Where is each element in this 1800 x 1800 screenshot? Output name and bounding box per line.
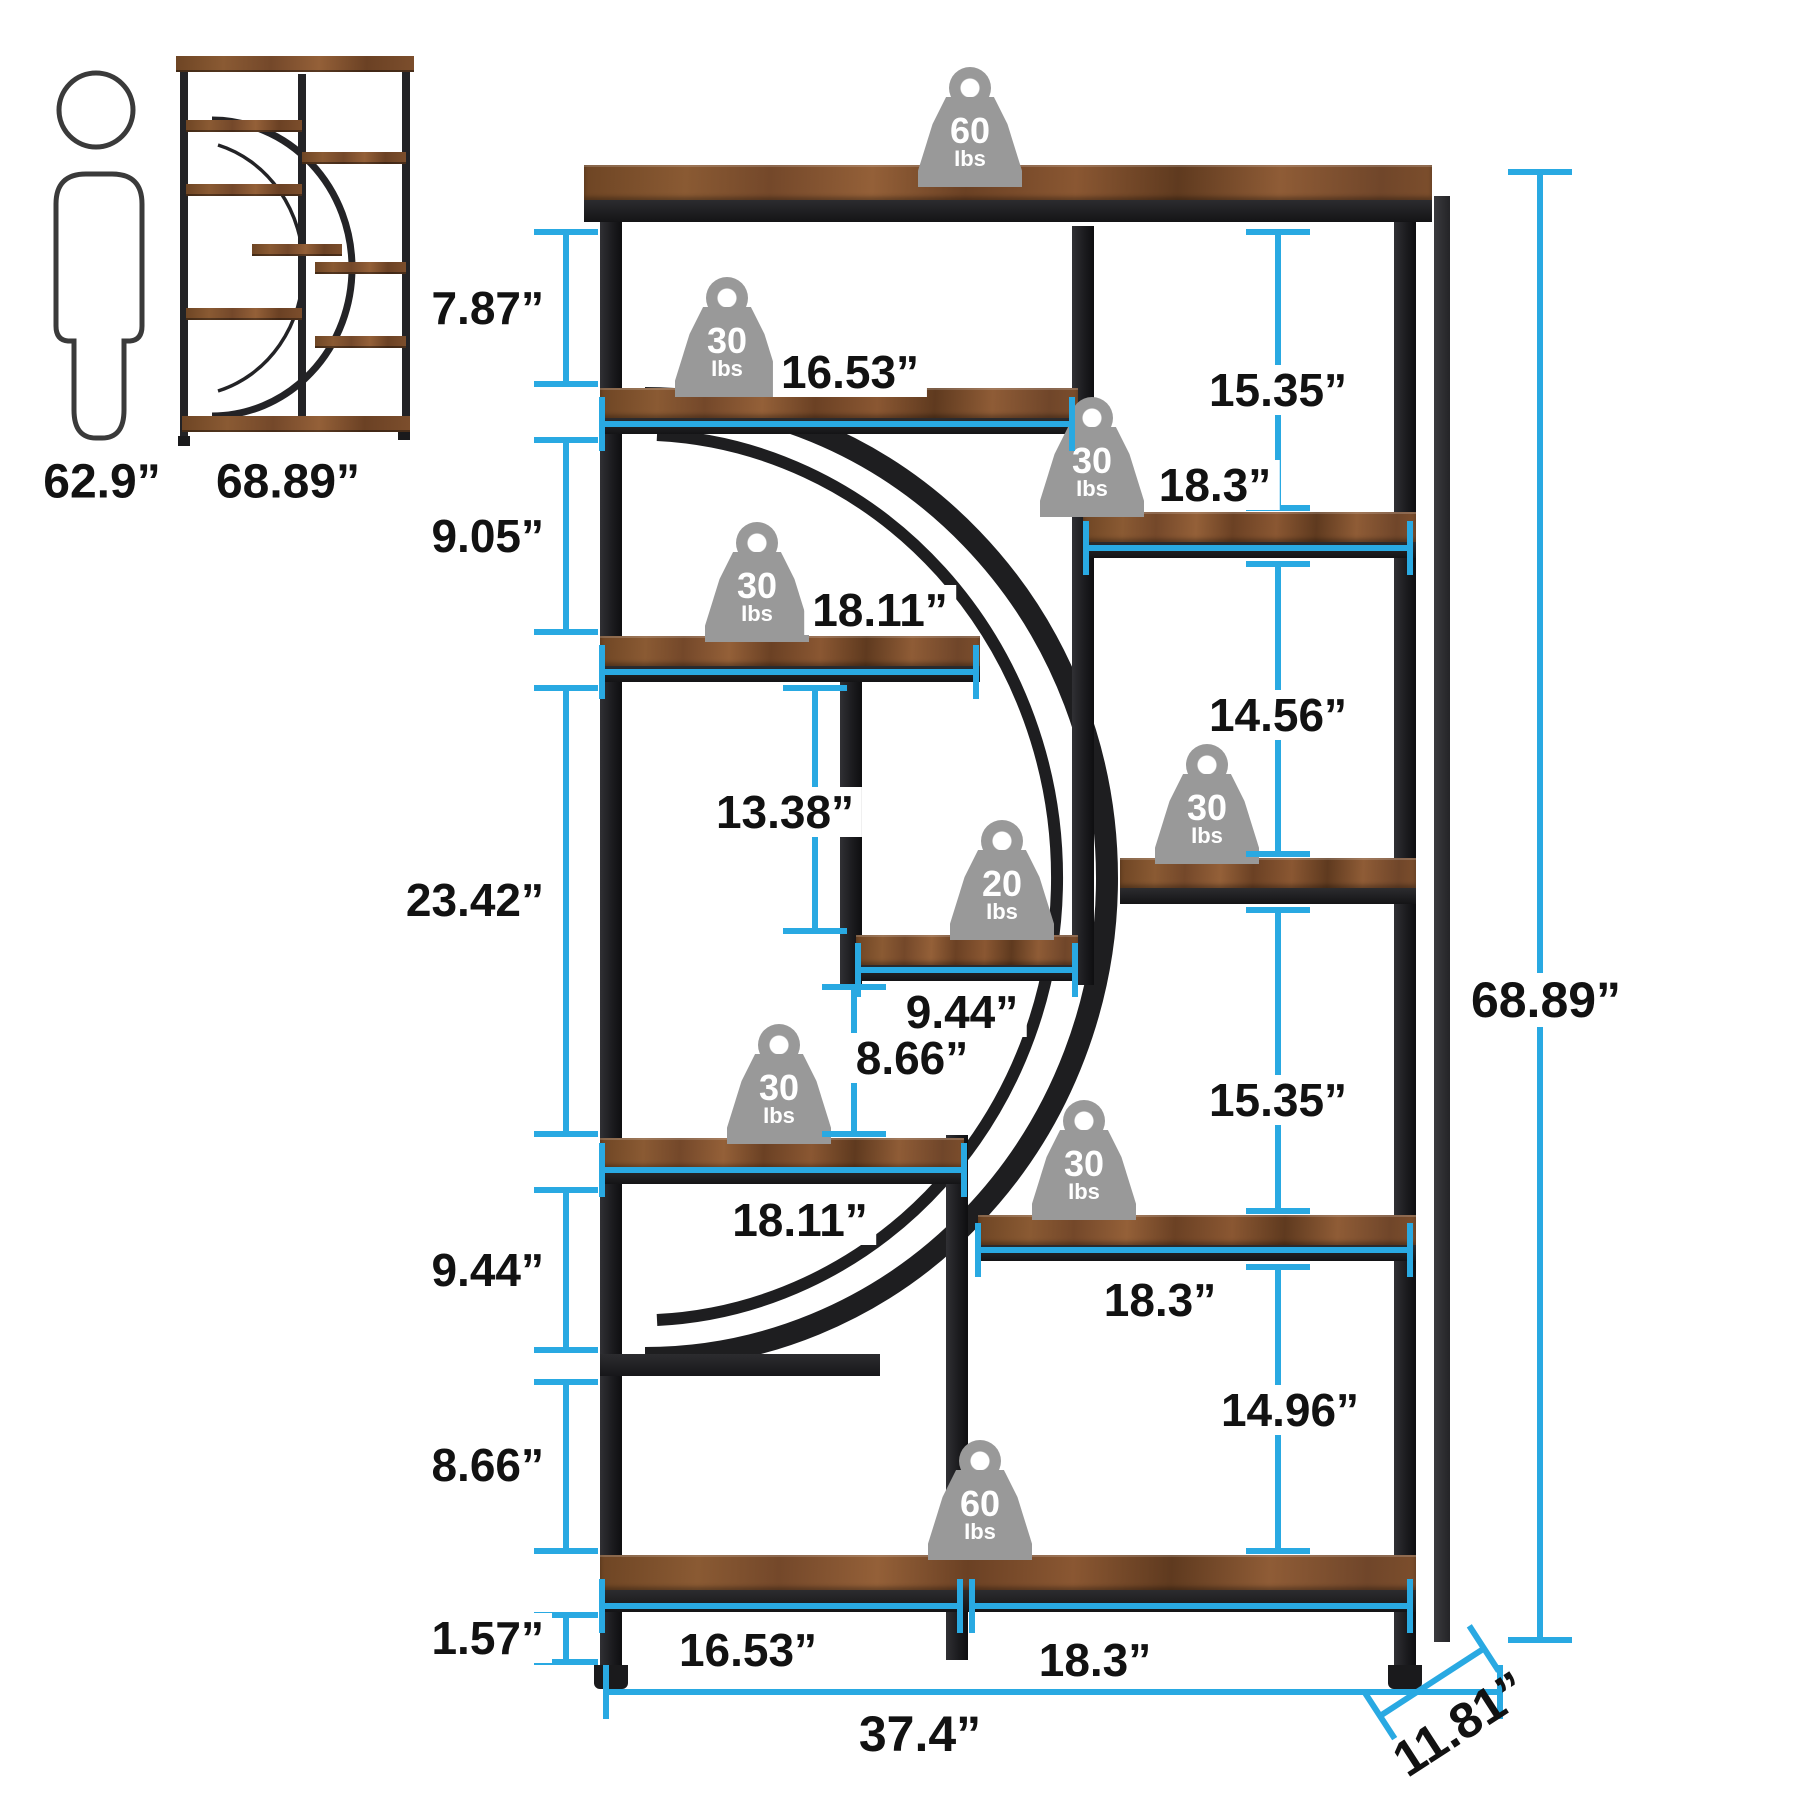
dim-line-15-35-lower xyxy=(1275,910,1281,1211)
upper-right-shelf-18-3 xyxy=(1083,512,1416,558)
dim-label-13-38: 13.38” xyxy=(708,787,862,837)
weight-icon-lower-right: 30Ibs xyxy=(1032,1100,1136,1220)
dim-label-37-4: 37.4” xyxy=(851,1707,989,1761)
dim-line-18-3-bottom xyxy=(972,1603,1410,1609)
dim-line-8-66-left xyxy=(563,1382,569,1551)
dim-line-18-3-upper xyxy=(1086,545,1410,551)
product-dimension-diagram: 62.9” 68.89” 60Ibs xyxy=(0,0,1800,1800)
dim-line-9-44-left xyxy=(563,1190,569,1350)
weight-icon-lower-left: 30Ibs xyxy=(727,1024,831,1144)
dim-label-15-35-upper: 15.35” xyxy=(1201,365,1355,415)
lower-left-shelf-18-11 xyxy=(600,1138,964,1184)
weight-icon-mid-left: 30Ibs xyxy=(705,522,809,642)
weight-icon-top: 60Ibs xyxy=(918,67,1022,187)
left-foot xyxy=(594,1665,628,1689)
arc-landing-bar xyxy=(600,1354,880,1376)
dim-line-9-44-small xyxy=(858,967,1075,973)
person-height-label: 62.9” xyxy=(43,455,160,510)
dim-label-16-53-bottom: 16.53” xyxy=(671,1625,825,1675)
dim-label-18-11-lower: 18.11” xyxy=(724,1195,876,1245)
dim-label-8-66-left: 8.66” xyxy=(423,1440,552,1490)
mid-right-shelf xyxy=(1120,858,1416,904)
dim-label-16-53-top: 16.53” xyxy=(773,347,927,397)
mid-left-shelf-18-11 xyxy=(600,636,980,682)
weight-icon-bottom: 60Ibs xyxy=(928,1440,1032,1560)
lower-right-shelf-18-3 xyxy=(978,1215,1416,1261)
dim-line-1-57 xyxy=(563,1615,569,1662)
dim-label-9-44-small: 9.44” xyxy=(898,987,1027,1037)
dim-line-68-89 xyxy=(1537,172,1543,1640)
dim-line-18-3-lower xyxy=(978,1247,1410,1253)
weight-icon-upper-right: 30Ibs xyxy=(1040,397,1144,517)
dim-line-7-87 xyxy=(563,232,569,384)
dim-line-18-11-lower xyxy=(602,1167,964,1173)
right-foot xyxy=(1388,1665,1422,1689)
dim-label-14-96: 14.96” xyxy=(1213,1385,1367,1435)
dim-label-23-42: 23.42” xyxy=(398,875,552,925)
dim-label-68-89: 68.89” xyxy=(1463,973,1629,1027)
dim-label-9-05: 9.05” xyxy=(423,511,552,561)
dim-label-18-3-bottom: 18.3” xyxy=(1031,1635,1160,1685)
dim-line-18-11-upper xyxy=(602,669,976,675)
back-right-leg xyxy=(1434,196,1450,1642)
dim-label-18-3-lower: 18.3” xyxy=(1096,1275,1225,1325)
dim-label-14-56: 14.56” xyxy=(1201,690,1355,740)
dim-label-8-66-mid: 8.66” xyxy=(848,1033,977,1083)
person-icon xyxy=(44,70,154,450)
weight-icon-center-small: 20Ibs xyxy=(950,820,1054,940)
center-small-shelf-9-44 xyxy=(856,935,1078,981)
dim-line-16-53-top xyxy=(602,421,1072,427)
dim-label-7-87: 7.87” xyxy=(423,283,552,333)
dim-label-1-57: 1.57” xyxy=(423,1613,552,1663)
weight-icon-upper-left: 30Ibs xyxy=(675,277,779,397)
center-divider-upper xyxy=(1072,226,1094,985)
dim-line-16-53-bottom xyxy=(602,1603,960,1609)
weight-icon-mid-right: 30Ibs xyxy=(1155,744,1259,864)
dim-label-18-3-upper: 18.3” xyxy=(1151,460,1280,510)
thumbnail-height-label: 68.89” xyxy=(216,455,360,510)
dim-line-23-42 xyxy=(563,688,569,1134)
right-leg xyxy=(1394,200,1416,1665)
dim-line-9-05 xyxy=(563,440,569,632)
dim-label-9-44-left: 9.44” xyxy=(423,1245,552,1295)
dim-label-18-11-upper: 18.11” xyxy=(804,585,956,635)
dim-label-15-35-lower: 15.35” xyxy=(1201,1075,1355,1125)
